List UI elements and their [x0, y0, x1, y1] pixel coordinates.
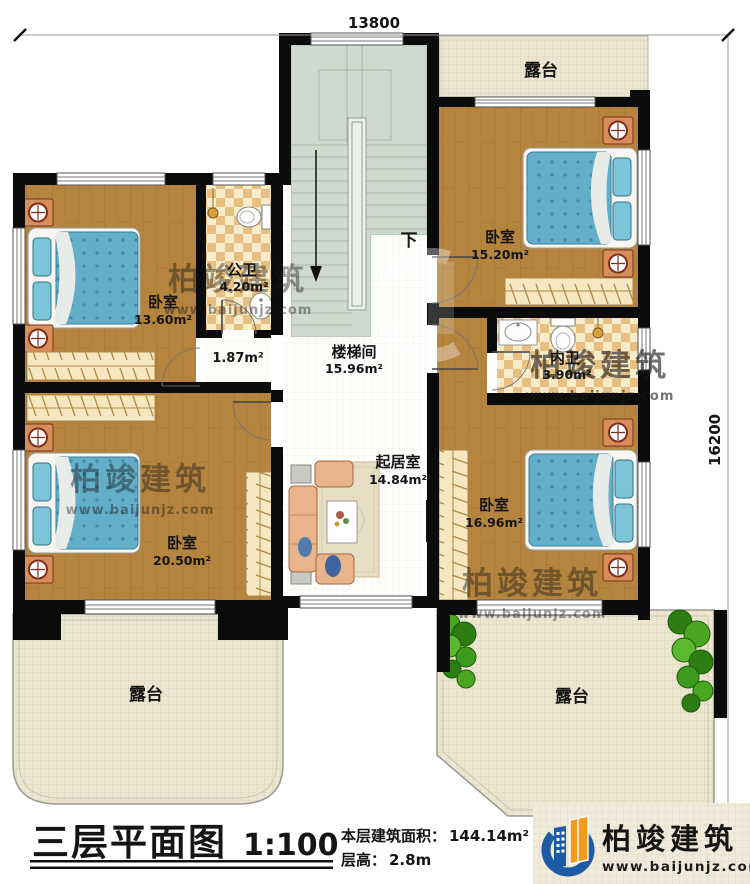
footer: 三层平面图 1:100 本层建筑面积： 144.14m² 层高： 2.8m [30, 821, 529, 869]
dimension-top: 13800 [348, 14, 400, 32]
title-underline [30, 860, 333, 863]
watermark-url: www.baijunjz.com [458, 607, 607, 622]
person-figure [298, 537, 312, 557]
shower-icon [208, 208, 218, 218]
living-area: 14.84m² [369, 472, 427, 487]
side-table [291, 465, 311, 483]
stair-rail [348, 118, 366, 310]
title-underline [30, 867, 333, 870]
bedroom-tl-label: 卧室 [148, 293, 178, 311]
brand-name: 柏竣建筑 [602, 822, 738, 856]
bedroom-tr-area: 15.20m² [471, 247, 529, 262]
bedroom-br-area: 16.96m² [465, 515, 523, 530]
bath-public-area: 4.20m² [219, 279, 268, 294]
living-label: 起居室 [374, 453, 420, 471]
toilet-tank [551, 318, 575, 326]
terrace-br-label: 露台 [555, 686, 589, 707]
bed-br [525, 450, 637, 550]
bath-public-label: 公卫 [227, 261, 257, 279]
floor-height-label: 层高： [341, 851, 386, 869]
floor-area-label: 本层建筑面积： [341, 827, 446, 845]
bedroom-br-label: 卧室 [479, 496, 509, 514]
window [13, 228, 25, 324]
floor-area-value: 144.14m² [449, 827, 529, 845]
bath-private-area: 3.90m² [542, 367, 591, 382]
watermark-text: 柏竣建筑 [462, 566, 602, 602]
window [300, 596, 412, 608]
terrace-top-label: 露台 [524, 60, 558, 81]
terrace-bl-floor [13, 614, 283, 804]
stair-down-label: 下 [401, 231, 418, 251]
floor-plan-svg: 柏竣建筑 www.baijunjz.com 柏竣建筑 www.baijunjz.… [0, 0, 750, 884]
stairwell-area: 15.96m² [325, 361, 383, 376]
window [57, 173, 165, 185]
coffee-table [327, 501, 357, 543]
floor-plan-canvas: 柏竣建筑 www.baijunjz.com 柏竣建筑 www.baijunjz.… [0, 0, 750, 884]
plan-scale: 1:100 [243, 828, 339, 863]
sofa [289, 486, 317, 572]
bedroom-tr-label: 卧室 [485, 228, 515, 246]
watermark-url: www.baijunjz.com [526, 389, 675, 404]
shower-icon [593, 328, 603, 338]
window [13, 450, 25, 550]
watermark-url: www.baijunjz.com [66, 503, 215, 518]
stairwell-label: 楼梯间 [331, 343, 376, 361]
plan-title: 三层平面图 [32, 821, 227, 864]
window [638, 462, 650, 547]
bedroom-bl-label: 卧室 [167, 534, 197, 552]
person-figure [325, 555, 341, 577]
terrace-bl-label: 露台 [129, 684, 163, 705]
bath-private-label: 内卫 [550, 349, 580, 367]
toilet-tank [262, 205, 271, 229]
floor-height-value: 2.8m [389, 851, 431, 869]
window [475, 97, 595, 107]
bedroom-bl-area: 20.50m² [153, 553, 211, 568]
watermark-text: 柏竣建筑 [70, 462, 210, 498]
sofa-chaise [315, 461, 353, 487]
brand-website: www.baijunjz.com [602, 859, 750, 875]
bed-tl [28, 228, 140, 328]
bedroom-tl-area: 13.60m² [134, 312, 192, 327]
dimension-right: 16200 [706, 414, 724, 466]
window [85, 600, 215, 614]
terrace-br-floor [437, 610, 714, 816]
window [638, 150, 650, 245]
toilet-icon [237, 207, 261, 227]
brand-logo: 柏竣建筑 www.baijunjz.com [533, 803, 750, 884]
bed-tr [523, 148, 637, 248]
hall-area: 1.87m² [212, 351, 263, 366]
window [213, 173, 265, 185]
